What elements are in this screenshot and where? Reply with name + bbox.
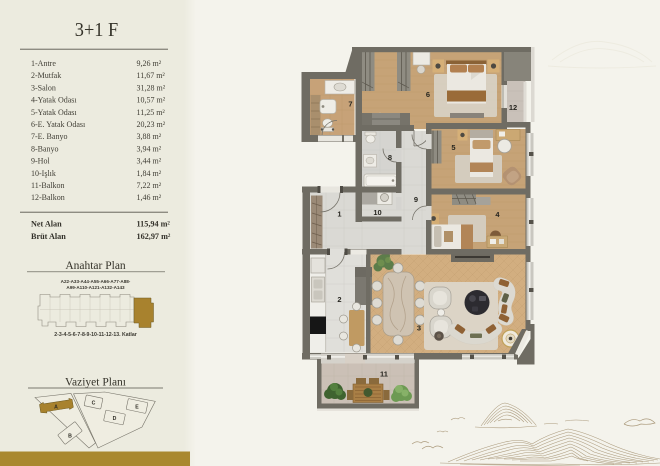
svg-text:6-E. Yatak Odası: 6-E. Yatak Odası	[31, 120, 86, 129]
svg-text:8-Banyo: 8-Banyo	[31, 144, 59, 153]
svg-text:7: 7	[348, 100, 352, 109]
svg-text:1-Antre: 1-Antre	[31, 59, 56, 68]
svg-text:162,97 m²: 162,97 m²	[137, 232, 171, 241]
svg-text:1,46 m²: 1,46 m²	[137, 193, 162, 202]
svg-text:31,28 m²: 31,28 m²	[137, 83, 166, 92]
svg-text:3,44 m²: 3,44 m²	[137, 157, 162, 166]
svg-text:9,26 m²: 9,26 m²	[137, 59, 162, 68]
svg-text:A: A	[54, 405, 58, 411]
svg-text:115,94 m²: 115,94 m²	[137, 220, 171, 229]
svg-text:Brüt Alan: Brüt Alan	[31, 232, 66, 241]
svg-text:D: D	[113, 416, 117, 422]
svg-text:11: 11	[380, 370, 388, 379]
svg-text:5-Yatak Odası: 5-Yatak Odası	[31, 108, 77, 117]
svg-text:11,25 m²: 11,25 m²	[137, 108, 166, 117]
svg-text:B: B	[68, 434, 72, 440]
svg-text:E: E	[135, 405, 139, 411]
svg-text:10: 10	[373, 208, 381, 217]
svg-text:11-Balkon: 11-Balkon	[31, 181, 64, 190]
svg-text:1,84 m²: 1,84 m²	[137, 169, 162, 178]
svg-text:10,57 m²: 10,57 m²	[137, 96, 166, 105]
svg-text:3+1 F: 3+1 F	[75, 20, 118, 42]
svg-text:7-E. Banyo: 7-E. Banyo	[31, 132, 67, 141]
svg-text:A22-A33-A44-A55-A66-A77-A88-: A22-A33-A44-A55-A66-A77-A88-	[61, 279, 131, 284]
svg-text:3: 3	[417, 324, 421, 333]
svg-text:2: 2	[337, 295, 341, 304]
svg-text:Net Alan: Net Alan	[31, 220, 62, 229]
svg-text:9-Hol: 9-Hol	[31, 157, 50, 166]
svg-text:6: 6	[426, 90, 430, 99]
svg-text:3-Salon: 3-Salon	[31, 83, 56, 92]
svg-text:Anahtar Plan: Anahtar Plan	[65, 260, 126, 272]
svg-text:11,67 m²: 11,67 m²	[137, 71, 166, 80]
svg-text:C: C	[92, 401, 96, 407]
svg-text:20,23 m²: 20,23 m²	[137, 120, 166, 129]
svg-text:12-Balkon: 12-Balkon	[31, 193, 65, 202]
svg-text:7,22 m²: 7,22 m²	[137, 181, 162, 190]
svg-text:A99-A110-A121-A132-A143: A99-A110-A121-A132-A143	[66, 285, 125, 290]
svg-text:Vaziyet Planı: Vaziyet Planı	[65, 377, 126, 389]
svg-text:10-Işlık: 10-Işlık	[31, 169, 56, 178]
svg-text:8: 8	[388, 153, 392, 162]
svg-text:2-Mutfak: 2-Mutfak	[31, 71, 61, 80]
svg-text:12: 12	[509, 103, 517, 112]
svg-text:3,88 m²: 3,88 m²	[137, 132, 162, 141]
svg-text:9: 9	[414, 195, 418, 204]
svg-text:3,94 m²: 3,94 m²	[137, 144, 162, 153]
svg-text:4-Yatak Odası: 4-Yatak Odası	[31, 96, 77, 105]
svg-text:2-3-4-5-6-7-8-9-10-11-12-13. K: 2-3-4-5-6-7-8-9-10-11-12-13. Katlar	[54, 332, 136, 338]
svg-text:5: 5	[451, 143, 455, 152]
svg-text:1: 1	[337, 210, 341, 219]
